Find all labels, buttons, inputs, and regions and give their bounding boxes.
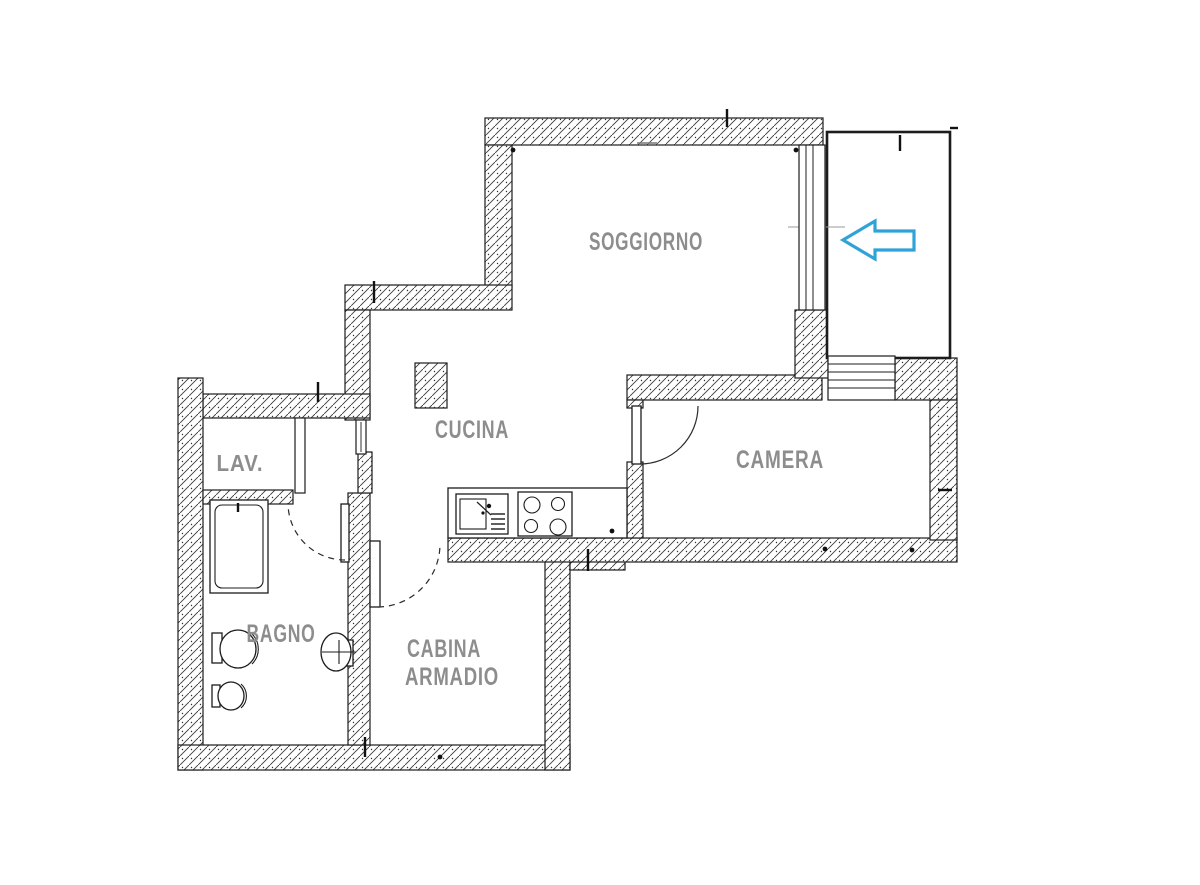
wall-soggiorno-left [485, 145, 512, 288]
cabina-door-arc [378, 544, 440, 607]
room-label-soggiorno: SOGGIORNO [589, 228, 703, 256]
room-label-camera: CAMERA [736, 446, 824, 474]
cabina-door-leaf [370, 541, 380, 607]
room-labels: SOGGIORNO CUCINA CAMERA LAV. BAGNO CABIN… [217, 228, 825, 691]
bagno-door [288, 503, 349, 562]
soggiorno-right-window [799, 145, 825, 310]
wall-camera-top-left [627, 375, 822, 400]
wall-lav-vestibule-divider [295, 418, 305, 493]
wall-cabina-right [545, 538, 570, 770]
wall-outer-left [178, 378, 203, 770]
bathtub [210, 500, 268, 593]
wall-camera-right [930, 400, 957, 540]
wall-camera-left [627, 462, 643, 538]
bidet [212, 682, 246, 710]
bagno-door-arc [288, 503, 345, 560]
wall-bottom [178, 745, 570, 770]
kitchen-column [415, 363, 447, 408]
floor-plan-canvas: SOGGIORNO CUCINA CAMERA LAV. BAGNO CABIN… [0, 0, 1200, 885]
room-label-armadio: ARMADIO [405, 663, 499, 691]
wall-step-horizontal [345, 285, 512, 310]
cooktop [518, 492, 572, 536]
room-label-cabina: CABINA [407, 635, 481, 663]
camera-top-window [828, 356, 895, 400]
wall-lav-top [203, 394, 370, 418]
bagno-door-leaf [341, 504, 349, 562]
kitchen-sink [456, 494, 508, 534]
room-label-bagno: BAGNO [247, 620, 316, 648]
wall-bagno-cabina-divider [348, 493, 370, 745]
wall-soggiorno-top [485, 118, 823, 145]
camera-door-arc [640, 406, 698, 464]
floor-plan-drawing: SOGGIORNO CUCINA CAMERA LAV. BAGNO CABIN… [0, 0, 1200, 885]
camera-door-leaf [632, 406, 641, 464]
wall-camera-top-right [895, 358, 957, 400]
cabina-door [370, 541, 440, 607]
wall-soggiorno-right-pier [795, 310, 828, 378]
wall-south-band [448, 538, 957, 562]
room-label-lav: LAV. [217, 450, 264, 476]
vestibule-sliding-door [356, 420, 366, 454]
sink-faucet [487, 504, 491, 508]
room-label-cucina: CUCINA [435, 416, 509, 444]
kitchen-fixtures [448, 488, 627, 538]
wall-vestibule-right [358, 452, 372, 493]
camera-door [632, 406, 698, 464]
bathroom-fixtures [210, 500, 356, 710]
